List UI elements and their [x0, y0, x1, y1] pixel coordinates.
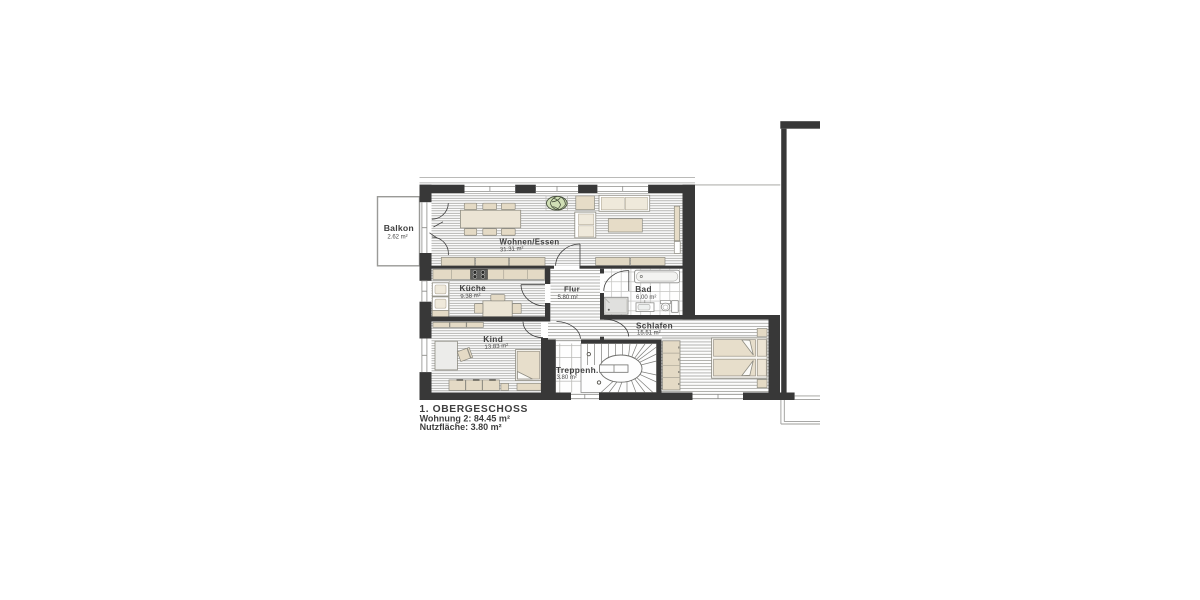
svg-text:Wohnen/Essen: Wohnen/Essen — [500, 238, 560, 247]
svg-text:3.80 m²: 3.80 m² — [557, 375, 577, 381]
svg-text:2.62 m²: 2.62 m² — [387, 235, 407, 241]
svg-text:5.80 m²: 5.80 m² — [558, 295, 578, 301]
svg-text:Bad: Bad — [635, 285, 652, 294]
svg-text:15.51 m²: 15.51 m² — [637, 331, 661, 337]
svg-text:Küche: Küche — [460, 284, 487, 293]
svg-text:Balkon: Balkon — [384, 223, 414, 233]
svg-text:Treppenh.: Treppenh. — [556, 365, 599, 375]
svg-text:Schlafen: Schlafen — [636, 321, 673, 330]
svg-text:Nutzfläche: 3.80 m²: Nutzfläche: 3.80 m² — [420, 422, 502, 432]
svg-text:6.00 m²: 6.00 m² — [636, 295, 656, 301]
svg-text:Flur: Flur — [564, 285, 580, 294]
svg-text:Kind: Kind — [483, 334, 503, 344]
